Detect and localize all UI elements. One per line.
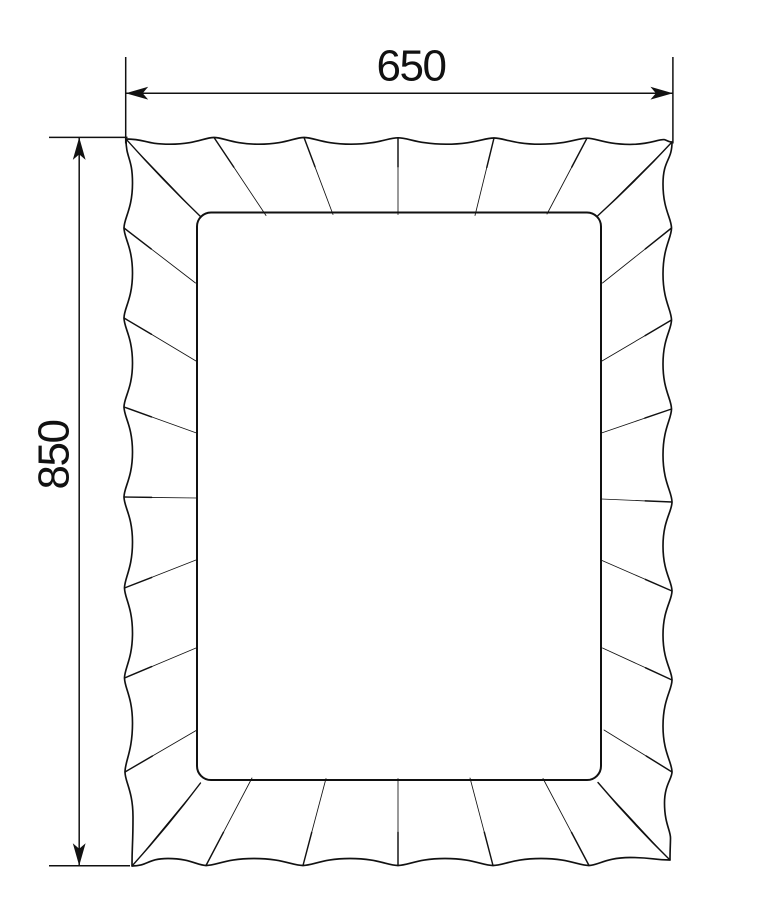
- svg-text:650: 650: [377, 42, 446, 91]
- svg-text:850: 850: [30, 421, 79, 490]
